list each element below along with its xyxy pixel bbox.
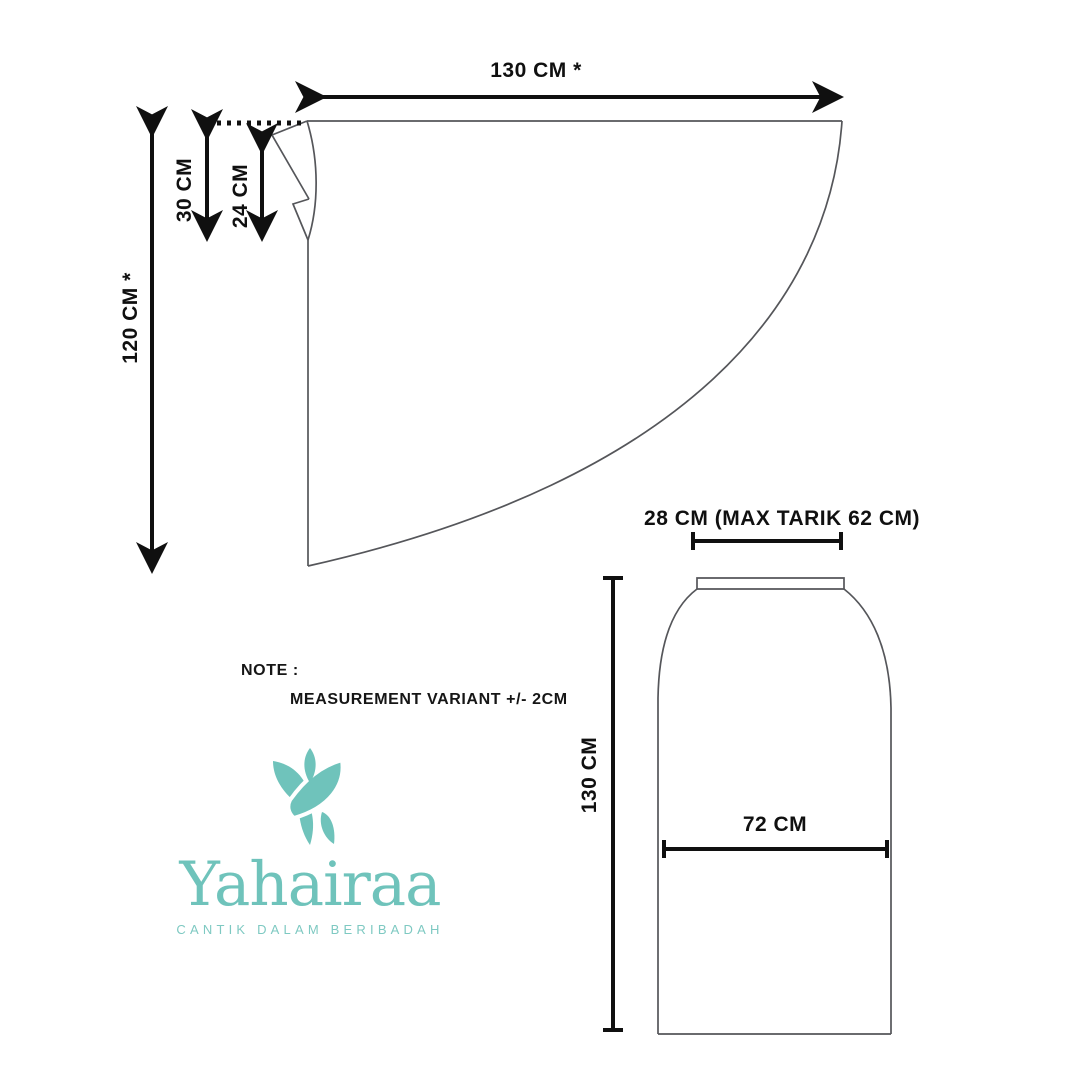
top-piece-outline xyxy=(272,121,842,566)
skirt-hip-measure xyxy=(664,840,887,858)
note-text: MEASUREMENT VARIANT +/- 2CM xyxy=(290,691,568,709)
leaf-monogram-icon xyxy=(254,740,366,852)
brand-wordmark: Yahairaa xyxy=(130,854,490,915)
size-chart-diagram: 130 CM * 120 CM * 30 CM 24 CM 28 CM (MAX… xyxy=(0,0,1080,1080)
neck-outer-label: 30 CM xyxy=(173,158,197,222)
skirt-hip-label: 72 CM xyxy=(743,813,807,837)
top-width-label: 130 CM * xyxy=(490,59,582,83)
brand-tagline: CANTIK DALAM BERIBADAH xyxy=(130,922,490,937)
skirt-length-label: 130 CM xyxy=(578,737,602,814)
skirt-length-measure xyxy=(603,578,623,1030)
brand-logo: Yahairaa CANTIK DALAM BERIBADAH xyxy=(130,740,490,937)
top-height-label: 120 CM * xyxy=(119,272,143,364)
skirt-waist-measure xyxy=(693,532,841,550)
neck-inner-label: 24 CM xyxy=(229,164,253,228)
skirt-waist-label: 28 CM (MAX TARIK 62 CM) xyxy=(644,507,920,531)
note-label: NOTE : xyxy=(241,662,299,680)
skirt-outline xyxy=(658,578,891,1034)
